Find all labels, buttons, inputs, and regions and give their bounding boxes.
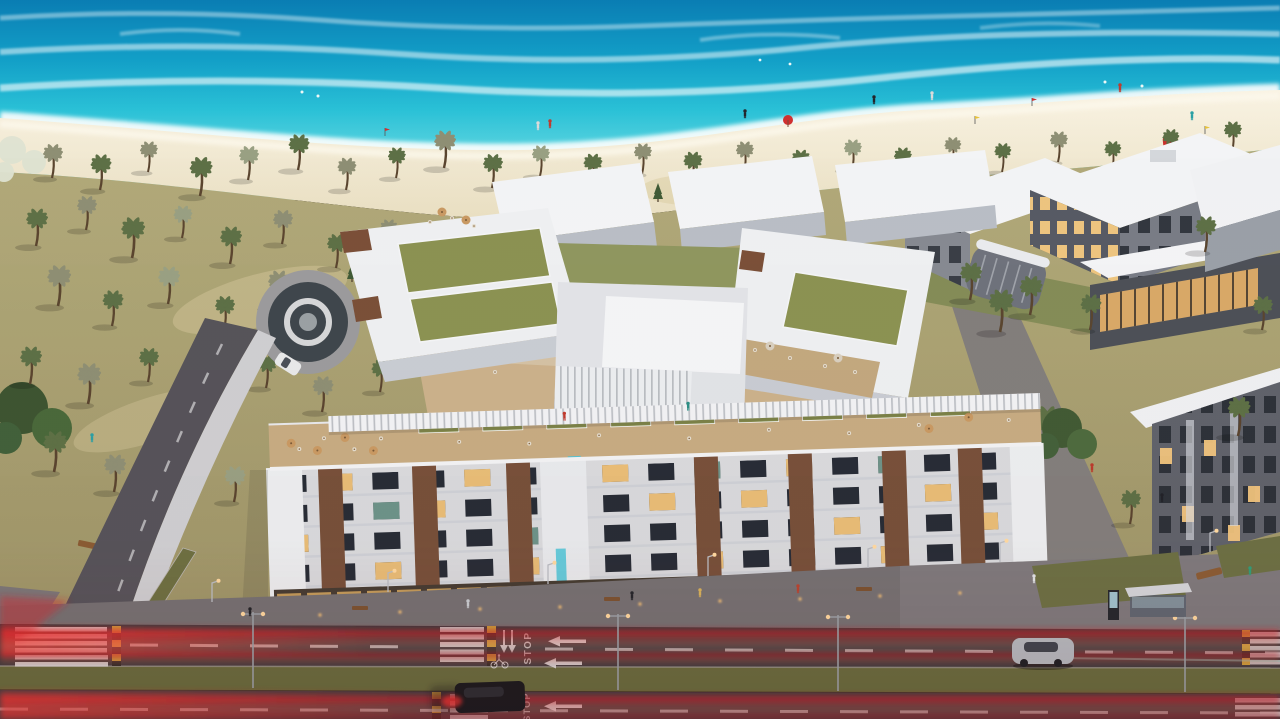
scene-canvas: STOP STOP xyxy=(0,0,1280,719)
dusk-overlay xyxy=(0,0,1280,719)
aerial-render: STOP STOP xyxy=(0,0,1280,719)
